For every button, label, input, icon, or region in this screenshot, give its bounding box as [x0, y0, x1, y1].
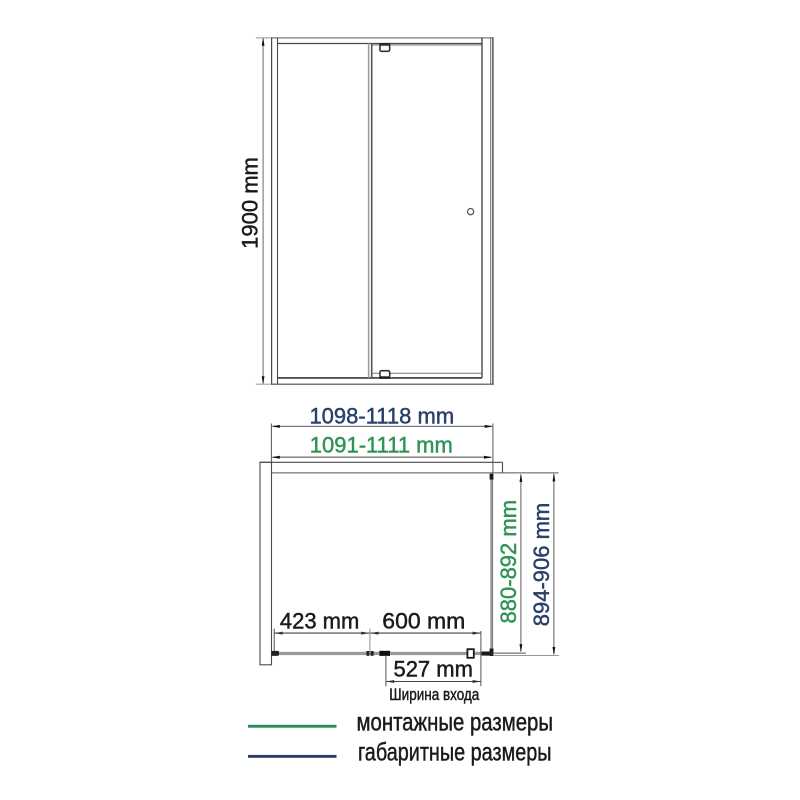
svg-text:1900 mm: 1900 mm — [237, 157, 262, 249]
svg-text:880-892 mm: 880-892 mm — [496, 500, 521, 624]
svg-text:600 mm: 600 mm — [382, 609, 465, 634]
svg-text:527 mm: 527 mm — [393, 656, 472, 681]
svg-text:габаритные размеры: габаритные размеры — [358, 739, 552, 767]
svg-text:Ширина входа: Ширина входа — [389, 686, 480, 704]
svg-text:1091-1111 mm: 1091-1111 mm — [310, 432, 453, 457]
svg-text:1098-1118 mm: 1098-1118 mm — [309, 403, 454, 428]
svg-text:894-906 mm: 894-906 mm — [529, 503, 554, 627]
svg-text:монтажные размеры: монтажные размеры — [357, 709, 554, 737]
svg-text:423 mm: 423 mm — [280, 609, 359, 634]
